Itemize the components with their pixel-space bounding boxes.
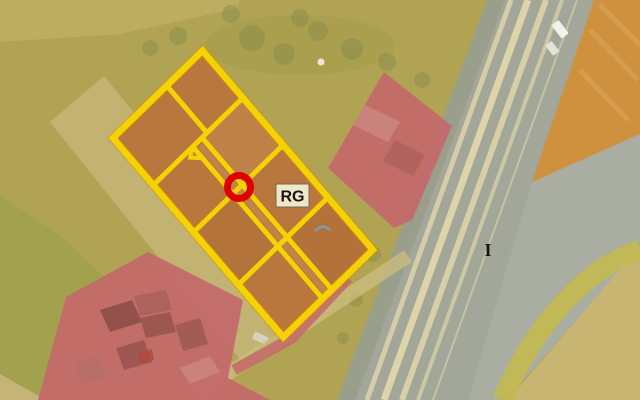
zone-label-rg-text: RG: [281, 189, 305, 206]
road-label-i: I: [484, 240, 491, 260]
small-white-dot: [318, 59, 325, 66]
zoning-map-canvas[interactable]: RG I: [0, 0, 640, 400]
zone-label-rg: RG: [276, 184, 309, 207]
